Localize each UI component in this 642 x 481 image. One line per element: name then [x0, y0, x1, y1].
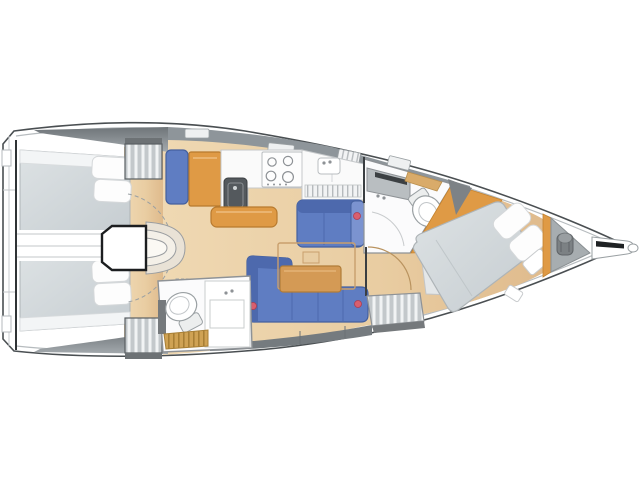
starboard-settee [297, 200, 364, 247]
faucet [322, 161, 325, 164]
transom-locker [2, 316, 11, 332]
armrest [351, 201, 364, 246]
windlass-drum [557, 233, 573, 255]
engine-box [102, 226, 146, 270]
vanity-counter [205, 281, 250, 347]
aft-head [158, 276, 252, 352]
pillow [93, 282, 131, 306]
floor-plan-canvas [0, 0, 642, 481]
floor-strip [158, 300, 166, 334]
locker-trim [125, 353, 162, 359]
pillow [91, 156, 129, 180]
nav-seat [166, 150, 188, 204]
locker-trim [125, 138, 162, 144]
slatted-locker [367, 293, 424, 326]
accent-button [354, 213, 361, 220]
bow-roller [628, 244, 638, 252]
table-leg [303, 252, 319, 263]
transom-locker [2, 150, 11, 166]
wood-tabletop [280, 266, 341, 292]
sole-wedge-bow [543, 214, 551, 277]
yacht-floor-plan [0, 0, 642, 481]
island-cabinet [211, 207, 277, 227]
faucet [230, 289, 233, 292]
accent-button [355, 301, 362, 308]
pillow [93, 179, 131, 203]
chart-table [189, 152, 221, 206]
vent-grille [305, 185, 361, 197]
faucet [376, 194, 379, 197]
stove [262, 152, 302, 187]
galley-sink-small [318, 158, 340, 174]
faucet [233, 186, 237, 190]
deck-hatch [185, 129, 209, 138]
hanging-locker [125, 144, 162, 179]
hanging-locker [125, 318, 162, 353]
